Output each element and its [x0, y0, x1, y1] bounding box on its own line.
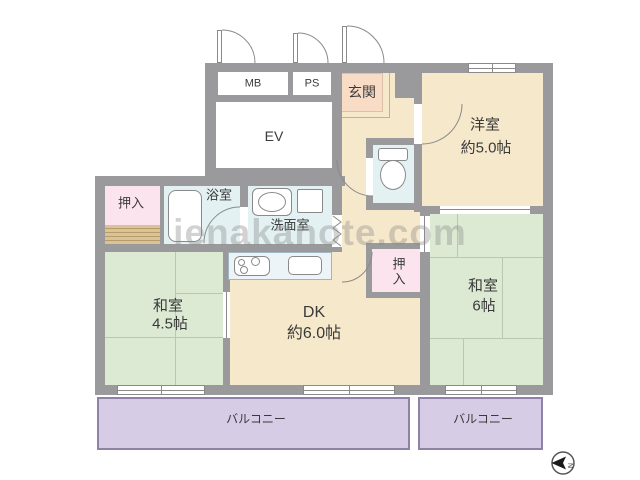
sliding-door-line	[226, 292, 227, 338]
compass-north-label: N	[566, 463, 573, 468]
label-yoshitsu: 洋室	[470, 116, 500, 133]
label-closet-left: 押入	[118, 197, 144, 212]
sliding-door-line	[440, 209, 530, 210]
tatami-line	[463, 338, 464, 385]
window-bottom-dk	[303, 385, 395, 395]
door-gap-toilet	[366, 158, 373, 196]
label-washitsu45-size: 4.5帖	[152, 315, 188, 332]
sliding-door-washitsu6-entry	[420, 216, 430, 252]
tatami-line	[175, 337, 176, 385]
label-ps: PS	[305, 78, 320, 91]
label-washitsu6-size: 6帖	[472, 297, 495, 314]
sliding-door-line	[424, 216, 425, 252]
wall-closet-right-bottom	[366, 292, 424, 298]
label-balcony-right: バルコニー	[453, 413, 513, 427]
label-ev: EV	[265, 128, 284, 144]
door-arc-genkan	[347, 26, 384, 63]
tatami-line	[105, 337, 223, 338]
wall-closet-right-left	[366, 249, 372, 292]
label-washitsu6: 和室	[468, 277, 498, 294]
compass-icon: N	[552, 452, 575, 474]
bathtub	[168, 190, 202, 242]
door-leaf-mb	[217, 30, 222, 63]
window-top	[468, 63, 516, 73]
tatami-line	[502, 257, 503, 338]
wall-toilet-top	[366, 138, 420, 145]
door-arc-mb	[222, 30, 255, 63]
wall-closet-bath	[160, 186, 164, 244]
sliding-door-yoshitsu-washitsu6	[440, 206, 530, 214]
wall-mid-horizontal	[95, 244, 342, 252]
label-genkan: 玄関	[348, 84, 376, 100]
label-closet-right: 押入	[390, 257, 405, 287]
step-storage	[105, 225, 160, 244]
label-bathroom: 浴室	[206, 189, 232, 204]
tatami-line	[457, 214, 458, 257]
label-mb: MB	[245, 78, 262, 91]
stove-burner	[251, 257, 260, 266]
kitchen-sink	[288, 256, 322, 275]
wall-toilet-bottom	[366, 203, 420, 210]
door-gap-yoshitsu	[414, 104, 422, 144]
wall-genkan-notch	[395, 63, 422, 98]
door-arc-ps	[298, 33, 328, 63]
label-yoshitsu-size: 約5.0帖	[461, 139, 512, 156]
label-dk-size: 約6.0帖	[287, 325, 341, 343]
door-leaf-ps	[293, 33, 298, 63]
wall-left	[95, 176, 105, 395]
door-gap-bathroom	[240, 207, 248, 244]
accordion-door-washroom	[332, 215, 342, 247]
toilet-bowl	[380, 160, 406, 190]
floorplan: N MB PS 玄関 EV 洋室 約5.0帖 押入 浴室 洗面室 和室 4.5帖…	[0, 0, 640, 480]
label-washitsu45: 和室	[153, 297, 183, 314]
washing-machine-pan	[297, 189, 323, 213]
window-bottom-washitsu45	[117, 385, 205, 395]
tatami-line	[430, 257, 543, 258]
stove-burner	[240, 266, 248, 274]
tatami-line	[175, 293, 223, 294]
window-bottom-washitsu6	[445, 385, 517, 395]
label-balcony-left: バルコニー	[226, 413, 286, 427]
stove-burner	[238, 259, 245, 266]
door-leaf-genkan	[342, 26, 347, 63]
wall-right	[543, 63, 553, 395]
tatami-line	[430, 338, 543, 339]
washbasin-bowl	[258, 192, 286, 212]
label-dk: DK	[303, 304, 325, 322]
wall-closet-right-top	[366, 243, 424, 249]
label-washroom: 洗面室	[270, 219, 309, 234]
